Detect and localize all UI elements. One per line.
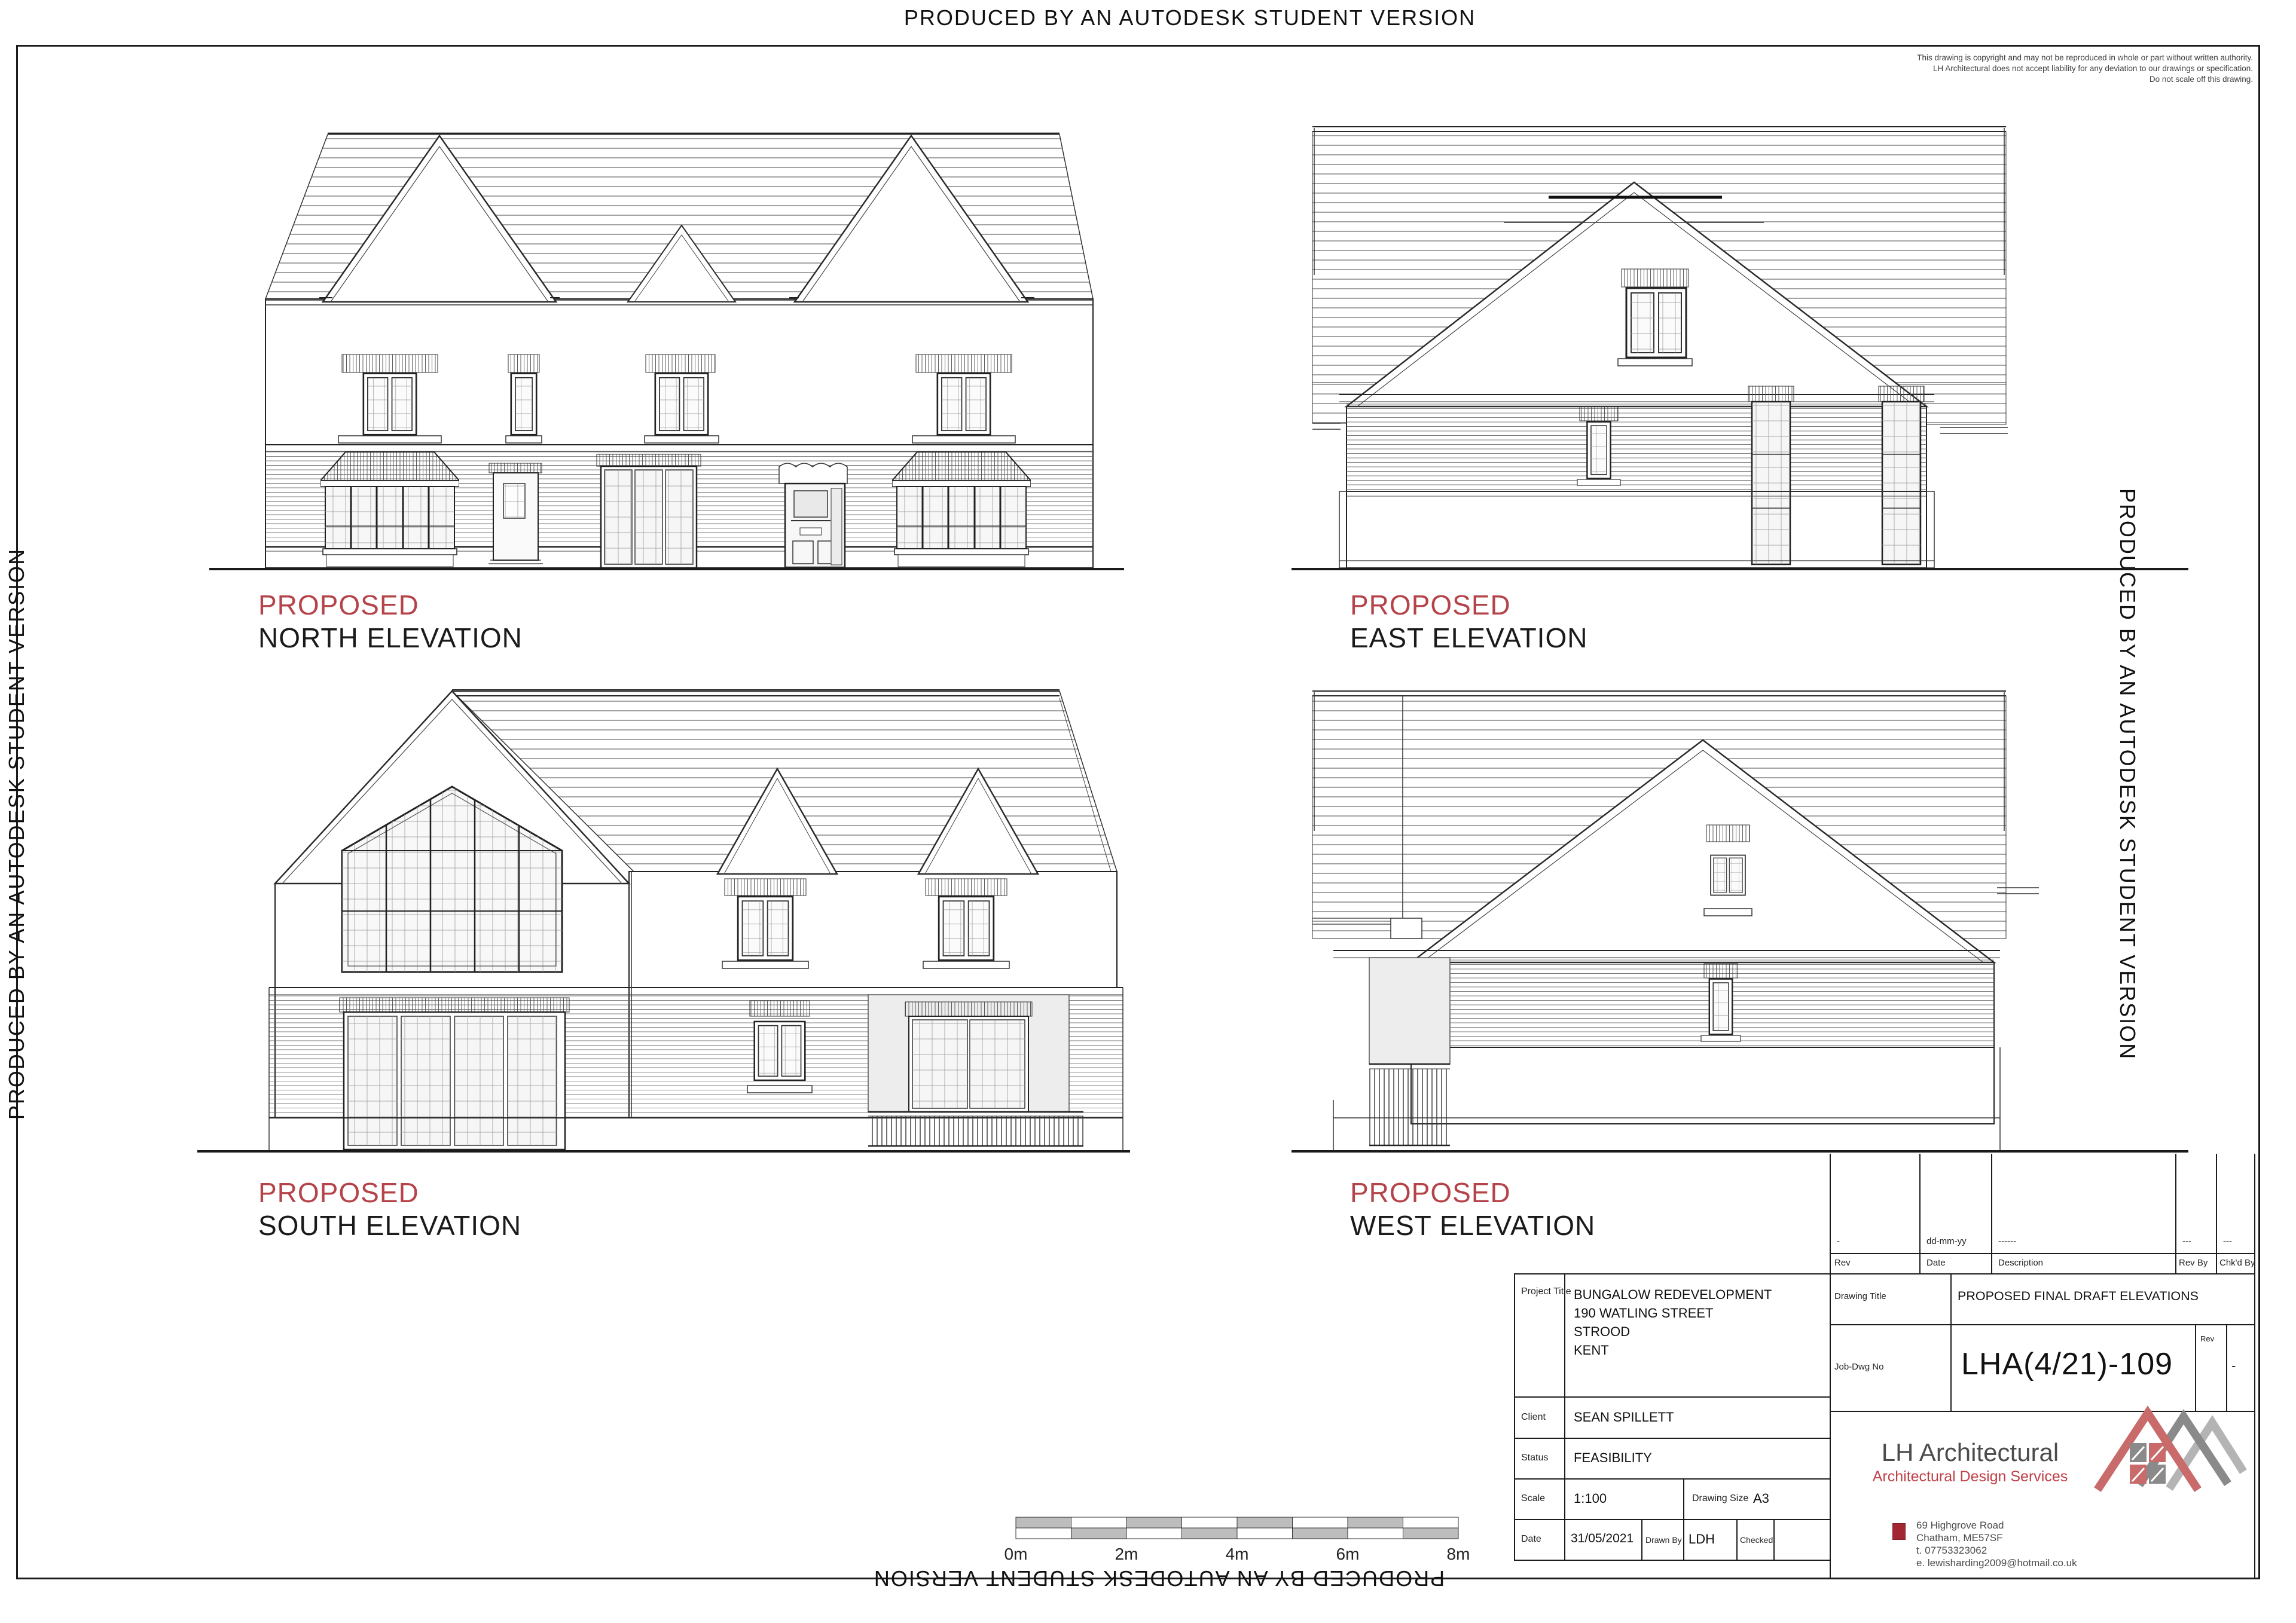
client-value: SEAN SPILLETT — [1574, 1410, 1674, 1425]
produced-text-top: PRODUCED BY AN AUTODESK STUDENT VERSION — [873, 5, 1507, 31]
label-elevation-name: EAST ELEVATION — [1350, 622, 1587, 655]
drawn-by-label: Drawn By — [1645, 1535, 1682, 1545]
revision-grid-line — [1830, 1253, 2255, 1254]
revision-col-chkdby: Chk'd By — [2219, 1258, 2255, 1268]
label-proposed: PROPOSED — [258, 589, 523, 622]
copyright-notice: This drawing is copyright and may not be… — [1854, 53, 2253, 85]
revision-chkdby-value: --- — [2223, 1236, 2232, 1246]
label-elevation-name: SOUTH ELEVATION — [258, 1209, 521, 1242]
title-block-grid-line — [2226, 1324, 2227, 1411]
address-bullet-icon — [1892, 1523, 1906, 1540]
label-proposed: PROPOSED — [1350, 1176, 1595, 1209]
label-east-elevation: PROPOSED EAST ELEVATION — [1350, 589, 1587, 655]
checked-label: Checked — [1740, 1535, 1773, 1545]
project-title-line: BUNGALOW REDEVELOPMENT — [1574, 1285, 1772, 1304]
scale-value: 1:100 — [1574, 1491, 1607, 1506]
company-name: LH Architectural — [1842, 1438, 2099, 1467]
scale-bar — [1013, 1515, 1461, 1541]
label-proposed: PROPOSED — [1350, 589, 1587, 622]
revision-grid-line — [1830, 1154, 1831, 1273]
status-value: FEASIBILITY — [1574, 1450, 1652, 1466]
drawing-title-label: Drawing Title — [1834, 1291, 1886, 1301]
date-label: Date — [1521, 1534, 1541, 1545]
revision-grid-line — [1919, 1154, 1921, 1273]
revision-grid-line — [2254, 1154, 2255, 1273]
job-dwg-no-label: Job-Dwg No — [1834, 1362, 1884, 1372]
project-title-label: Project Title — [1521, 1286, 1571, 1297]
revision-col-revby: Rev By — [2179, 1258, 2208, 1268]
title-block-grid-line — [1736, 1519, 1738, 1560]
project-title-line: STROOD — [1574, 1322, 1772, 1341]
title-block-grid-line — [1773, 1519, 1775, 1560]
project-title-value: BUNGALOW REDEVELOPMENT 190 WATLING STREE… — [1574, 1285, 1772, 1359]
title-block-grid-line — [1641, 1519, 1642, 1560]
title-block-grid-line — [2195, 1324, 2196, 1411]
project-title-line: 190 WATLING STREET — [1574, 1304, 1772, 1322]
rev-value: - — [2231, 1358, 2236, 1374]
revision-revby-value: --- — [2182, 1236, 2191, 1246]
title-block-grid-line — [1514, 1478, 1830, 1480]
revision-col-rev: Rev — [1834, 1258, 1851, 1268]
scale-bar-label: 2m — [1106, 1545, 1147, 1564]
revision-grid-line — [1991, 1154, 1992, 1273]
drawing-size-label: Drawing Size — [1692, 1493, 1748, 1504]
project-title-line: KENT — [1574, 1341, 1772, 1359]
address-line: Chatham, ME57SF — [1916, 1532, 2077, 1544]
revision-grid-line — [2175, 1154, 2176, 1273]
drawn-by-value: LDH — [1689, 1532, 1715, 1547]
label-west-elevation: PROPOSED WEST ELEVATION — [1350, 1176, 1595, 1242]
title-block-grid-line — [1514, 1519, 1830, 1520]
scale-bar-label: 0m — [995, 1545, 1037, 1564]
revision-rev-value: - — [1837, 1236, 1840, 1246]
address-line: 69 Highgrove Road — [1916, 1519, 2077, 1532]
east-elevation-drawing — [1291, 126, 2200, 580]
address-line: e. lewisharding2009@hotmail.co.uk — [1916, 1557, 2077, 1569]
label-north-elevation: PROPOSED NORTH ELEVATION — [258, 589, 523, 655]
label-south-elevation: PROPOSED SOUTH ELEVATION — [258, 1176, 521, 1242]
copyright-line: LH Architectural does not accept liabili… — [1854, 63, 2253, 74]
label-elevation-name: WEST ELEVATION — [1350, 1209, 1595, 1242]
company-address: 69 Highgrove Road Chatham, ME57SF t. 077… — [1916, 1519, 2077, 1569]
date-value: 31/05/2021 — [1571, 1532, 1634, 1546]
label-elevation-name: NORTH ELEVATION — [258, 622, 523, 655]
north-elevation-drawing — [191, 129, 1136, 583]
revision-grid-line — [2216, 1154, 2217, 1273]
west-elevation-drawing — [1291, 681, 2200, 1154]
drawing-title-value: PROPOSED FINAL DRAFT ELEVATIONS — [1958, 1289, 2199, 1304]
company-logo-icon — [2093, 1405, 2249, 1509]
title-block-grid-line — [1564, 1273, 1565, 1560]
produced-text-left: PRODUCED BY AN AUTODESK STUDENT VERSION — [4, 517, 30, 1151]
scale-bar-label: 8m — [1437, 1545, 1479, 1564]
south-elevation-drawing — [191, 681, 1136, 1154]
company-tagline: Architectural Design Services — [1842, 1468, 2099, 1486]
status-label: Status — [1521, 1453, 1548, 1463]
address-line: t. 07753323062 — [1916, 1544, 2077, 1557]
scale-bar-label: 4m — [1216, 1545, 1258, 1564]
scale-bar-label: 6m — [1327, 1545, 1369, 1564]
title-block-grid-line — [1830, 1324, 2255, 1325]
title-block-grid-line — [1683, 1519, 1684, 1560]
rev-label: Rev — [2200, 1334, 2214, 1343]
drawing-size-value: A3 — [1753, 1491, 1769, 1506]
title-block-grid-line — [1950, 1273, 1952, 1411]
copyright-line: Do not scale off this drawing. — [1854, 74, 2253, 85]
revision-col-date: Date — [1926, 1258, 1946, 1268]
revision-date-value: dd-mm-yy — [1926, 1236, 1967, 1246]
job-dwg-no-value: LHA(4/21)-109 — [1961, 1346, 2173, 1382]
client-label: Client — [1521, 1412, 1546, 1423]
revision-description-value: ------ — [1998, 1236, 2016, 1246]
scale-label: Scale — [1521, 1493, 1545, 1504]
drawing-sheet: PRODUCED BY AN AUTODESK STUDENT VERSION … — [0, 0, 2296, 1623]
produced-text-bottom: PRODUCED BY AN AUTODESK STUDENT VERSION — [842, 1565, 1476, 1591]
label-proposed: PROPOSED — [258, 1176, 521, 1209]
title-block-grid-line — [1514, 1438, 1830, 1439]
title-block-grid-line — [1514, 1396, 1830, 1398]
title-block-grid-line — [1683, 1478, 1684, 1519]
copyright-line: This drawing is copyright and may not be… — [1854, 53, 2253, 63]
revision-col-description: Description — [1998, 1258, 2043, 1268]
